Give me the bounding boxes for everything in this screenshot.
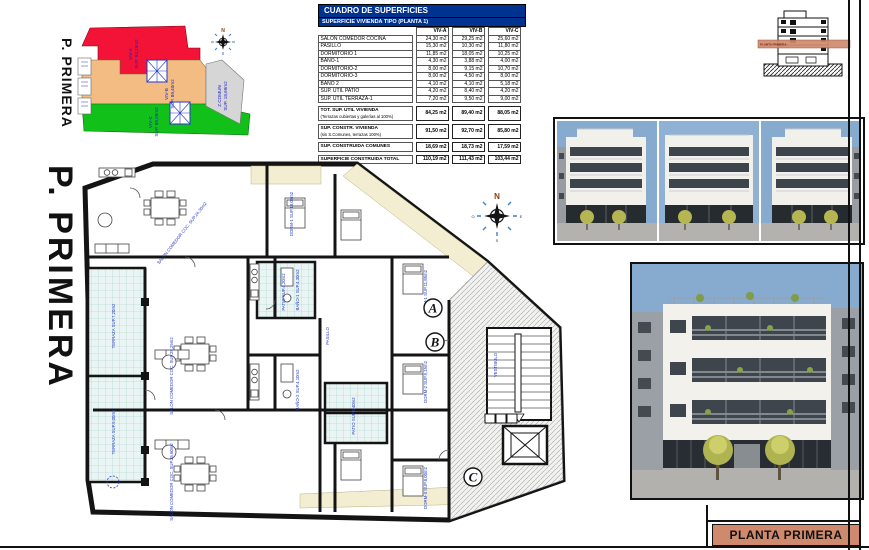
title-block-divider [706,505,708,547]
label-bano-2: BAÑO-2 SUP.4,10m2 [295,369,300,411]
building-photo-strip [553,117,865,245]
label-salon-c: SALON COMEDOR COC. SUP.25,60m2 [169,443,174,521]
main-facade [663,292,831,468]
key-plan-landings [78,58,91,114]
drawing-sheet: { "title_block": { "label": "PLANTA PRIM… [0,0,869,550]
label-patio-2: PATIO SUP.8,40m2 [351,397,356,435]
label-viv-b: VIV-B [164,88,169,100]
compass-e: E [520,214,523,219]
section-band-label: PLANTA PRIMERA [760,43,787,47]
label-patio-1: PATIO SUP.4,20m2 [281,273,286,311]
areas-table: CUADRO DE SUPERFICIES SUPERFICIE VIVIEND… [318,4,526,164]
table-summary-row: TOT. SUP. UTIL VIVIENDA (Terrazas cubier… [318,106,526,121]
label-pasillo: PASILLO [325,327,330,345]
label-terraza-1: TERRAZA SUP.7,20m2 [111,303,116,348]
label-viv-a-sup: SUP. 84,25m2 [134,39,139,69]
sheet-title: PLANTA PRIMERA [730,528,843,542]
label-zona-comun: Z.COMUN [217,85,222,106]
key-plan-compass-icon: N [211,28,235,55]
table-row: SUP. ÚTIL TERRAZA-1 7,20 m2 9,50 m2 9,00… [318,95,526,104]
compass-rose: N O E S [471,192,522,243]
marker-c: C [469,470,478,485]
key-plan: P. PRIMERA VIV-A SUP. 84,25m2 VIV-B SUP.… [40,8,260,140]
table-subtitle: SUPERFICIE VIVIENDA TIPO (PLANTA 1) [318,18,526,27]
key-plan-title: P. PRIMERA [59,38,75,128]
compass-n: N [494,192,500,201]
label-dorm-3: DORM-3 SUP.8,00m2 [423,466,428,509]
label-viv-c-sup: SUP. 88,05m2 [154,107,159,137]
label-viv-c: VIV-C [148,115,153,128]
label-dorm-2: DORM-2 SUP.9,15m2 [423,360,428,403]
marker-a: A [428,301,438,316]
building-elevation-photo [630,262,864,500]
elevator [503,426,547,464]
title-block: PLANTA PRIMERA [712,524,860,546]
building-section-thumb: PLANTA PRIMERA [750,4,858,92]
label-viv-a: VIV-A [128,47,133,60]
label-dorm-top: DORM-1 SUP.18,05m2 [289,191,294,236]
sheet-frame-right-outer [859,0,861,550]
label-terraza-2: TERRAZA SUP.9,00m2 [111,409,116,454]
compass-o: O [471,214,474,219]
sheet-frame-bottom [0,546,869,548]
table-summary-row: SUP. CONSTR. VIVIENDA (sin S.Comunes, te… [318,124,526,139]
sheet-frame-right-inner [848,0,850,550]
floor-plan: SALON COMEDOR COC. SUP.24,30m2 SALON COM… [35,150,580,528]
label-bano-1: BAÑO-1 SUP.4,30m2 [295,269,300,311]
label-viv-b-sup: SUP. 89,40m2 [170,79,175,109]
compass-s: S [496,238,499,243]
label-salon-b: SALON COMEDOR COC. SUP.29,25m2 [169,337,174,415]
building-render-panel [557,121,861,241]
plan-side-title: P. PRIMERA [41,165,79,389]
label-zona-comun-sup: SUP. 18,69m2 [223,81,228,111]
pavement [632,468,862,498]
marker-b: B [430,335,440,350]
section-building [778,11,828,66]
label-vestibulo: VESTIBULO [493,352,498,377]
table-title: CUADRO DE SUPERFICIES [318,4,526,18]
mailboxes [485,414,517,423]
key-plan-compass-n: N [221,28,225,34]
title-block-top-line [706,520,861,522]
